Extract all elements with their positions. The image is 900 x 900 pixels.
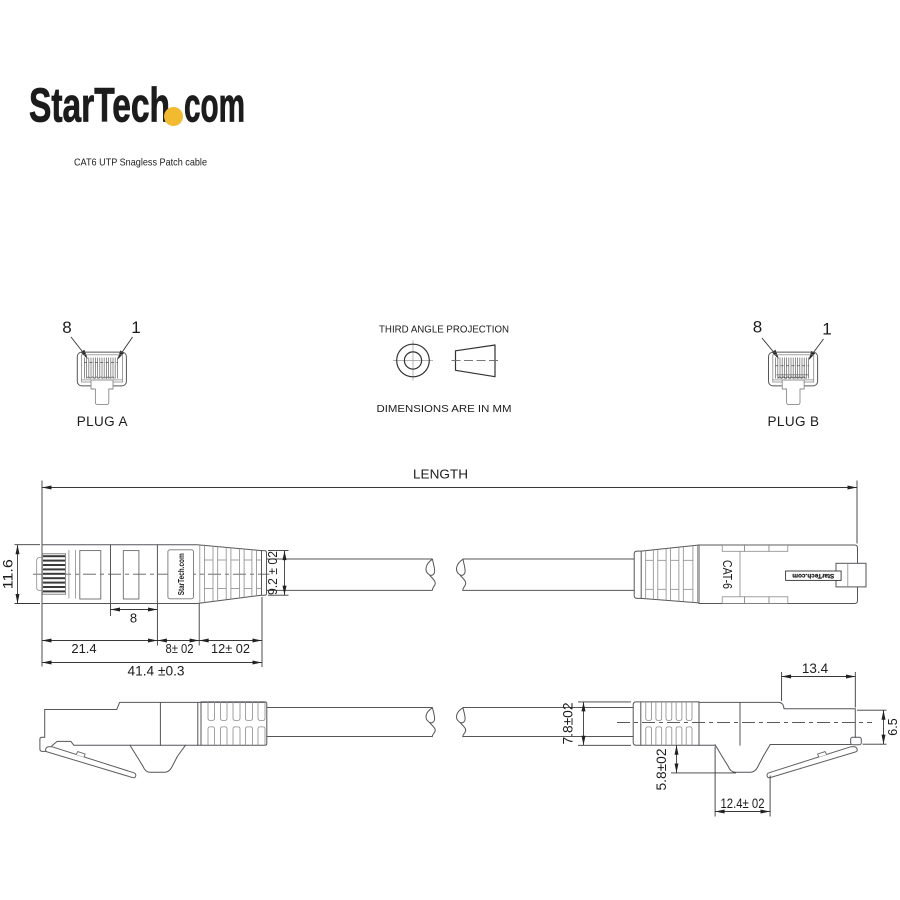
svg-text:8: 8 — [130, 611, 137, 626]
svg-text:41.4 ±0.3: 41.4 ±0.3 — [128, 664, 185, 679]
svg-text:com: com — [184, 80, 245, 133]
svg-text:CAT-6: CAT-6 — [720, 560, 735, 589]
svg-text:7.8±02: 7.8±02 — [561, 703, 576, 745]
svg-text:21.4: 21.4 — [71, 641, 96, 656]
svg-text:11.6: 11.6 — [1, 559, 16, 589]
svg-text:LENGTH: LENGTH — [413, 468, 468, 482]
svg-text:StarTech.com: StarTech.com — [792, 572, 834, 579]
svg-text:StarTech: StarTech — [29, 80, 170, 133]
svg-text:8± 02: 8± 02 — [166, 641, 194, 656]
svg-text:12± 02: 12± 02 — [211, 641, 250, 656]
svg-text:12.4± 02: 12.4± 02 — [721, 796, 765, 811]
svg-text:PLUG A: PLUG A — [77, 414, 128, 429]
svg-text:13.4: 13.4 — [802, 661, 829, 676]
svg-text:PLUG B: PLUG B — [768, 414, 820, 429]
svg-text:9.2 ± 02: 9.2 ± 02 — [266, 551, 280, 595]
svg-text:6.5: 6.5 — [886, 718, 900, 735]
svg-text:8: 8 — [753, 318, 762, 337]
svg-text:1: 1 — [131, 318, 140, 337]
svg-text:1: 1 — [822, 320, 831, 339]
svg-text:DIMENSIONS ARE IN MM: DIMENSIONS ARE IN MM — [377, 404, 512, 415]
svg-text:CAT6 UTP Snagless Patch cable: CAT6 UTP Snagless Patch cable — [74, 157, 207, 169]
svg-text:5.8±02: 5.8±02 — [654, 749, 669, 791]
svg-text:8: 8 — [62, 318, 71, 337]
svg-text:StarTech.com: StarTech.com — [177, 553, 186, 595]
svg-text:THIRD ANGLE PROJECTION: THIRD ANGLE PROJECTION — [379, 325, 509, 336]
